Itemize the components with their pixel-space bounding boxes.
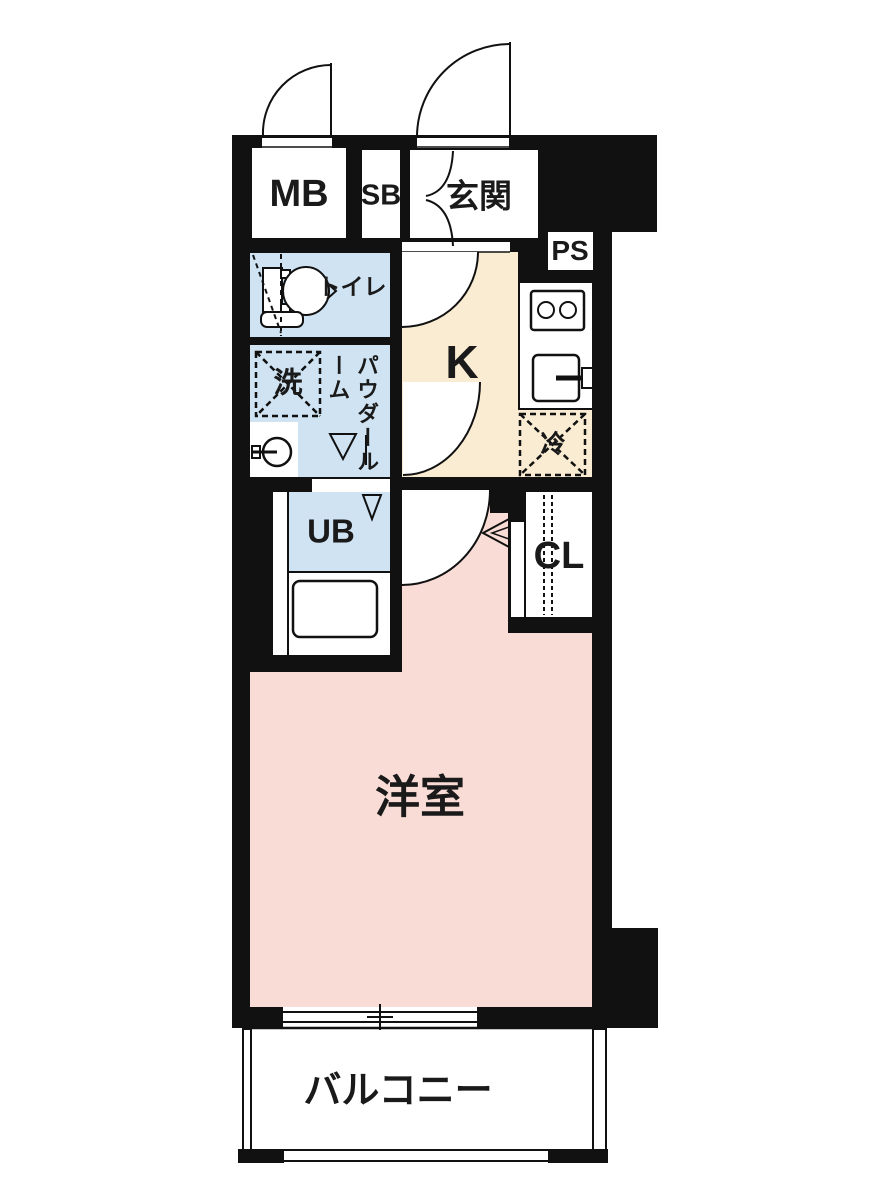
kitchen-counter [518,283,592,410]
balcony-corner-right [548,1149,608,1163]
label-entrance: 玄関 [446,180,512,213]
room-western-lower [250,672,592,1007]
balcony-window [283,1007,477,1028]
balcony-wall-left [242,1028,252,1152]
closet-door [511,522,524,617]
wall-block-top-right [538,135,657,232]
mb-door-swing-arc [263,65,331,135]
label-kitchen: K [445,339,478,385]
ub-threshold [312,479,390,492]
label-washer: 洗 [273,370,302,399]
label-pipe-space: PS [551,237,588,265]
label-western-room: 洋室 [375,775,465,820]
label-shoe-box: SB [361,182,401,211]
entrance-door-swing-arc [417,44,510,136]
label-refrigerator: 冷 [540,433,565,458]
powder-sink-area [250,422,298,477]
balcony-wall-right [592,1028,607,1152]
wall-closet-bottom [508,617,592,633]
label-unit-bath: UB [307,515,355,548]
label-balcony: バルコニー [303,1072,492,1110]
label-meter-box: MB [269,175,328,213]
label-powder-room: パウダールーム [320,354,380,474]
floor-plan: MB SB 玄関 PS トイレ 洗 パウダールーム K 冷 UB CL 洋室 バ… [0,0,880,1200]
label-closet: CL [534,537,585,575]
label-toilet: トイレ [318,276,387,299]
entrance-step [402,242,510,252]
wall-closet-top [508,478,592,492]
balcony-corner-left [238,1149,284,1163]
